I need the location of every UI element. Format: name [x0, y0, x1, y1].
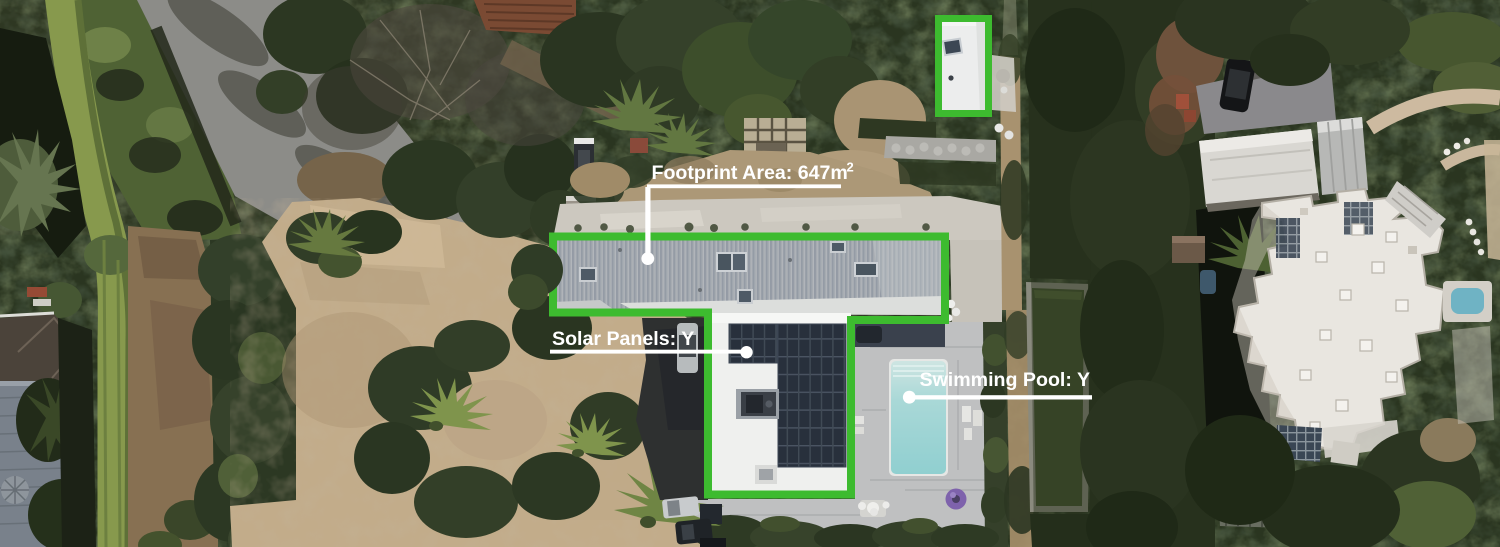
svg-text:Solar Panels: Y: Solar Panels: Y: [552, 328, 694, 350]
svg-text:Swimming Pool: Y: Swimming Pool: Y: [920, 369, 1091, 391]
svg-text:Footprint Area: 647m: Footprint Area: 647m: [652, 162, 848, 184]
svg-text:2: 2: [847, 160, 854, 175]
